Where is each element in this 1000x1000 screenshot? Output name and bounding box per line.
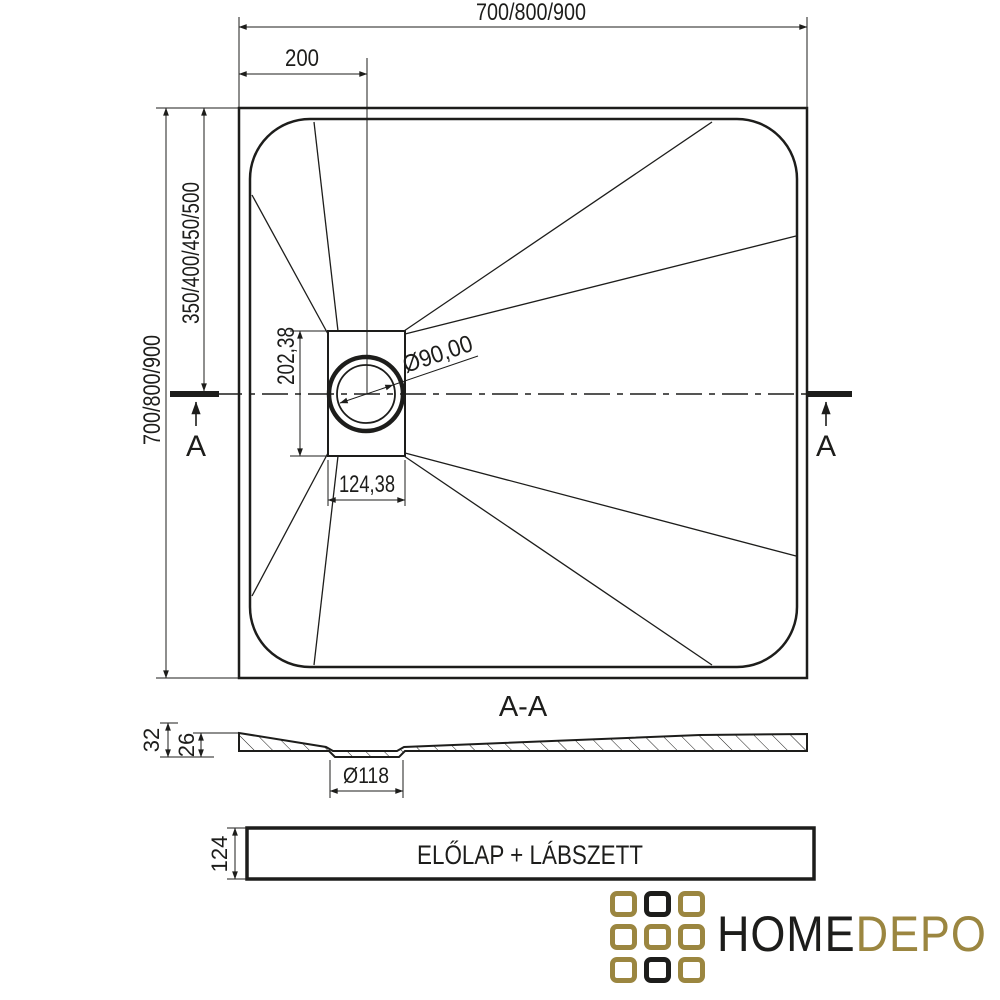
slope-line-bottom-right-b xyxy=(404,456,712,665)
logo-square xyxy=(610,957,637,983)
brand-logo: HOMEDEPO xyxy=(610,891,1000,983)
section-dimensions: 32 26 Ø118 xyxy=(139,723,403,798)
section-marker-right-label: A xyxy=(816,430,836,463)
slope-line-bottom-left-b xyxy=(314,456,338,665)
dim-center-offset-label: 350/400/450/500 xyxy=(178,182,205,324)
section-marker-left-label: A xyxy=(186,430,206,463)
section-profile xyxy=(239,733,807,757)
logo-square xyxy=(644,957,671,983)
dim-drain-offset-label: 200 xyxy=(285,45,319,72)
top-view: A A 700/800/900 200 700/800/900 350/400/… xyxy=(139,0,852,678)
slope-line-bottom-left-a xyxy=(252,453,328,596)
front-panel: ELŐLAP + LÁBSZETT 124 xyxy=(207,828,814,879)
logo-text-depo: DEPO xyxy=(856,906,987,962)
dim-recess-diameter-label: Ø118 xyxy=(343,763,389,788)
logo-square xyxy=(678,957,705,983)
dim-top-width-label: 700/800/900 xyxy=(476,0,586,26)
dim-recess-height-label: 202,38 xyxy=(273,327,300,385)
dim-total-height-label: 32 xyxy=(139,728,164,752)
logo-square xyxy=(610,924,637,950)
logo-wordmark: HOMEDEPO xyxy=(717,909,987,959)
shower-tray-drawing: A A 700/800/900 200 700/800/900 350/400/… xyxy=(0,0,1000,1000)
slope-line-top-left-a xyxy=(252,195,328,334)
logo-grid xyxy=(610,891,705,983)
logo-text-home: HOME xyxy=(717,906,856,962)
technical-drawing-page: A A 700/800/900 200 700/800/900 350/400/… xyxy=(0,0,1000,1000)
tray-outer-edge xyxy=(239,108,807,678)
section-view: A-A 32 26 Ø118 xyxy=(139,691,807,798)
logo-square xyxy=(644,891,671,917)
dim-floor-height-label: 26 xyxy=(174,733,199,757)
dim-left-height-label: 700/800/900 xyxy=(139,335,166,445)
dim-panel-height-label: 124 xyxy=(207,836,232,873)
slope-line-top-right-a xyxy=(404,122,712,331)
front-panel-label: ELŐLAP + LÁBSZETT xyxy=(417,839,643,870)
logo-square xyxy=(644,924,671,950)
logo-square xyxy=(678,891,705,917)
logo-square xyxy=(678,924,705,950)
slope-line-bottom-right-a xyxy=(405,453,796,556)
section-title: A-A xyxy=(499,691,548,723)
dim-recess-width-label: 124,38 xyxy=(339,471,395,498)
dim-drain-diameter-label: Ø90,00 xyxy=(399,330,476,378)
slope-line-top-right-b xyxy=(405,236,796,334)
slope-line-top-left-b xyxy=(314,122,338,331)
logo-square xyxy=(610,891,637,917)
tray-inner-rim xyxy=(250,119,797,667)
